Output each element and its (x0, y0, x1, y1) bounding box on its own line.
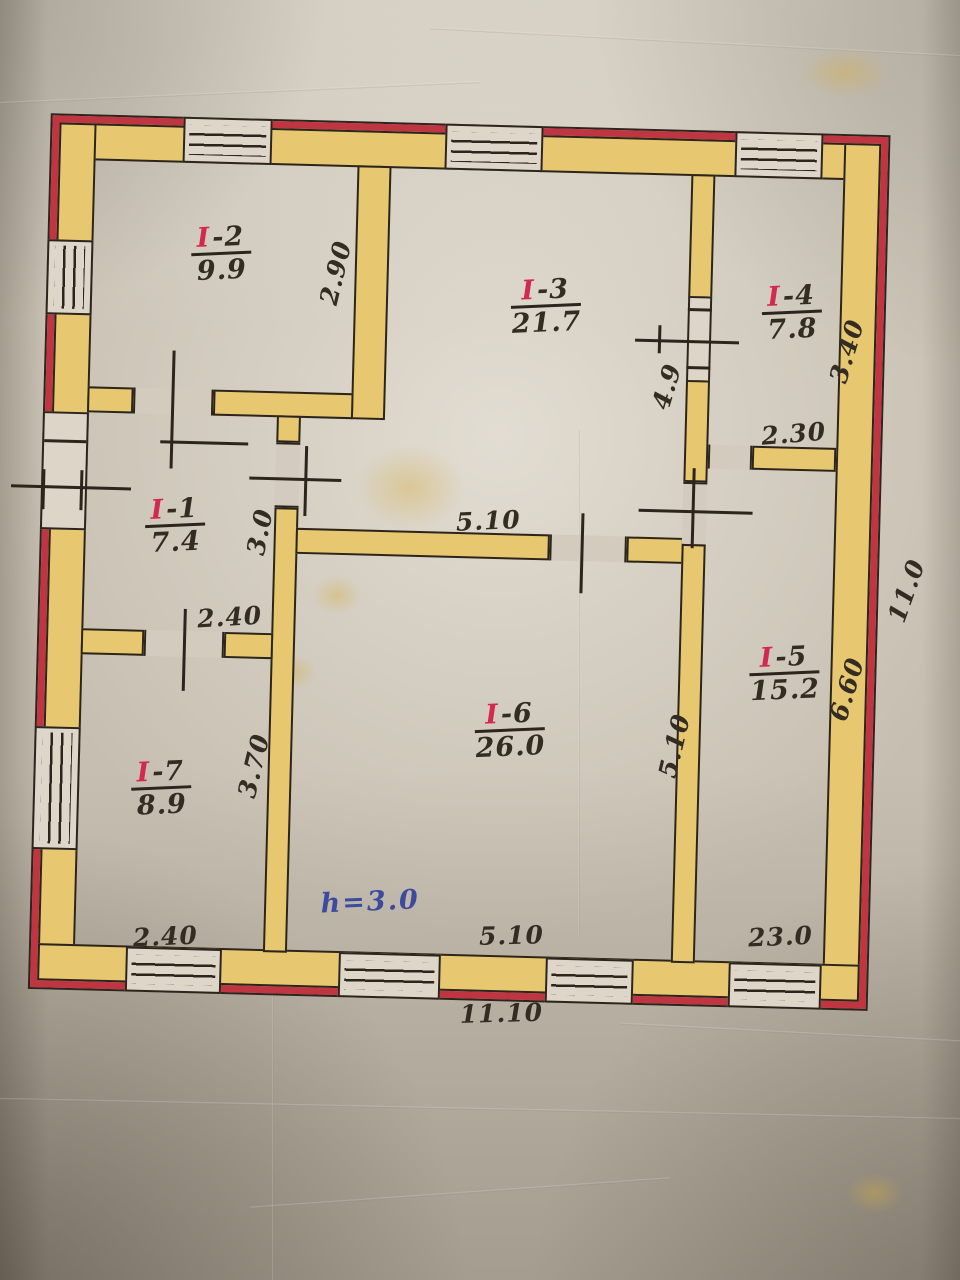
dim-i4-width: 2.30 (760, 417, 827, 451)
dim-i1-width: 2.40 (196, 601, 263, 634)
floor-plan: I-1 7.4 I-2 9.9 I-3 21.7 I-4 7.8 I-5 15.… (28, 113, 891, 1011)
paper-stain (800, 48, 890, 98)
window-hatch (131, 955, 216, 986)
room-label-i7: I-7 8.9 (130, 757, 192, 821)
window-bottom-3 (545, 957, 634, 1004)
wall-i6-top-b (626, 536, 684, 563)
dim-i7-width: 2.40 (132, 921, 198, 953)
window-top-1 (183, 117, 273, 165)
room-label-i3: I-3 21.7 (510, 275, 582, 340)
window-hatch (741, 139, 818, 171)
dim-i6-bottom-width: 5.10 (479, 920, 545, 951)
window-top-2 (444, 124, 543, 173)
room-area: 9.9 (191, 254, 252, 287)
room-area: 7.8 (762, 313, 823, 346)
room-prefix: I (196, 222, 213, 254)
room-number: I-3 (510, 275, 581, 309)
door-gap-i6 (549, 534, 627, 562)
room-prefix: I (759, 642, 776, 674)
window-bottom-2 (338, 952, 441, 1000)
room-number: I-7 (130, 757, 191, 791)
outer-wall-red-edge (30, 115, 889, 1009)
room-label-i6: I-6 26.0 (474, 699, 546, 764)
room-number: I-2 (190, 223, 251, 257)
window-bottom-1 (125, 946, 222, 993)
dim-i6-top-width: 5.10 (455, 505, 521, 537)
room-prefix: I (150, 494, 167, 526)
door-gap-i4 (708, 445, 753, 470)
wall-i1-bottom-b (224, 632, 274, 659)
photo-background: I-1 7.4 I-2 9.9 I-3 21.7 I-4 7.8 I-5 15.… (0, 0, 960, 1280)
paper-crease (620, 1023, 960, 1044)
dim-house-depth: 11.0 (882, 555, 931, 626)
note-ceiling-height: h=3.0 (320, 884, 420, 919)
room-area: 15.2 (750, 674, 821, 707)
window-bottom-4 (728, 962, 822, 1009)
paper-crease (0, 1098, 960, 1121)
room-number: I-4 (761, 282, 822, 316)
window-left-1 (46, 239, 94, 315)
window-left-2 (32, 726, 81, 850)
dim-i5-bottom-width: 23.0 (747, 921, 813, 953)
window-hatch (189, 125, 267, 157)
room-prefix: I (136, 757, 153, 789)
wall-i2-right (351, 165, 392, 420)
window-hatch (40, 732, 73, 844)
wall-center-vert-2 (683, 380, 710, 483)
room-number: I-6 (474, 699, 545, 733)
room-number: I-5 (748, 642, 819, 676)
room-number: I-1 (144, 495, 205, 529)
window-hatch (54, 245, 86, 309)
room-label-i2: I-2 9.9 (190, 223, 252, 287)
wall-i2-bottom-a (87, 386, 134, 413)
room-prefix: I (485, 699, 502, 731)
dim-house-width: 11.10 (459, 998, 543, 1029)
paper-crease (430, 27, 960, 58)
room-area: 7.4 (145, 526, 206, 559)
paper-crease (250, 1177, 669, 1208)
window-hatch (734, 970, 816, 1001)
window-hatch (451, 132, 538, 164)
wall-center-vert-1 (688, 174, 715, 299)
room-prefix: I (521, 275, 538, 307)
room-label-i4: I-4 7.8 (761, 282, 823, 346)
room-area: 26.0 (475, 730, 546, 763)
paper-stain (845, 1172, 905, 1214)
window-hatch (344, 960, 435, 991)
room-area: 8.9 (131, 789, 192, 822)
paper-crease (0, 81, 480, 105)
wall-i1-bottom-a (81, 628, 145, 656)
room-area: 21.7 (511, 306, 582, 339)
room-label-i5: I-5 15.2 (748, 642, 820, 707)
wall-i1-right-top (276, 415, 301, 443)
room-prefix: I (767, 281, 784, 313)
door-gap-i1 (275, 442, 301, 508)
paper-crease (272, 995, 274, 1280)
window-top-3 (734, 131, 823, 179)
window-hatch (551, 966, 628, 997)
room-label-i1: I-1 7.4 (144, 495, 206, 559)
